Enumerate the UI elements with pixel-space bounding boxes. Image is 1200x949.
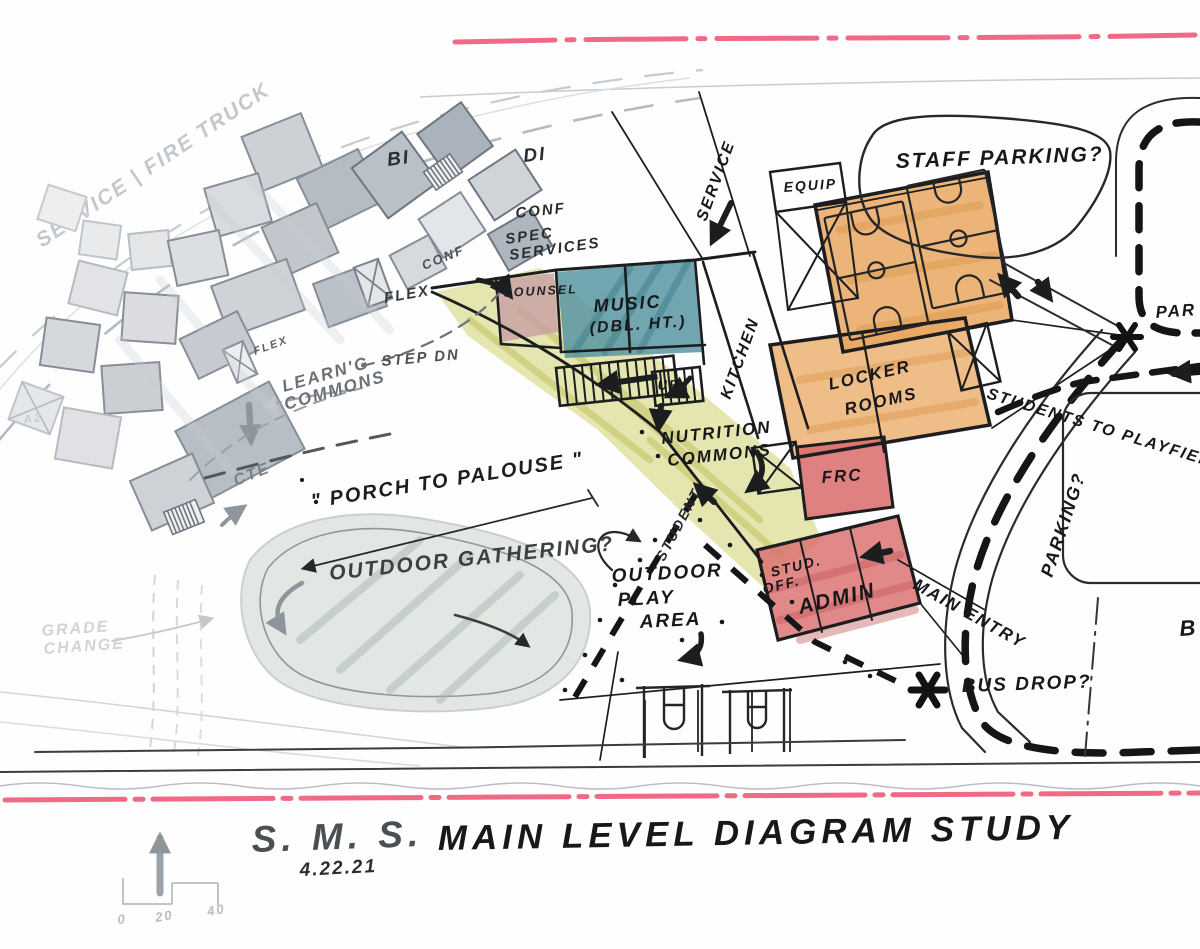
title-main: MAIN LEVEL DIAGRAM STUDY xyxy=(437,808,1074,858)
label-bi: BI xyxy=(386,147,412,171)
label-outdoor-play-2: PLAY xyxy=(617,587,676,611)
title-date: 4.22.21 xyxy=(298,856,377,881)
outdoor-courts xyxy=(636,684,792,758)
title-sms: S. M. S. xyxy=(251,813,424,860)
label-service: SERVICE xyxy=(694,138,739,223)
title-block: S. M. S. MAIN LEVEL DIAGRAM STUDY 4.22.2… xyxy=(117,808,1075,927)
scale-bar: 0 20 40 xyxy=(117,878,227,927)
label-outdoor-play-3: AREA xyxy=(638,609,702,633)
label-flex-b: FLEX xyxy=(252,334,290,358)
label-b-partial: B xyxy=(1179,615,1199,641)
label-up: UP xyxy=(657,376,680,393)
label-equip: EQUIP xyxy=(783,175,838,195)
label-outdoor-play-1: OUTDOOR xyxy=(611,560,723,587)
label-bus-drop: BUS DROP? xyxy=(961,671,1092,697)
scale-40: 40 xyxy=(205,901,227,919)
label-students-to-playfield: STUDENTS TO PLAYFIELD xyxy=(985,386,1200,474)
label-par-partial: PAR xyxy=(1155,300,1197,322)
scale-20: 20 xyxy=(153,907,175,925)
site-diagram-sketch: SERVICE | FIRE TRUCK xyxy=(0,0,1200,949)
label-flex-a: FLEX xyxy=(383,282,432,307)
label-porch: " PORCH TO PALOUSE " xyxy=(309,448,585,513)
label-frc: FRC xyxy=(821,465,863,487)
label-di: DI xyxy=(522,144,547,167)
label-staff-parking: STAFF PARKING? xyxy=(895,143,1104,173)
label-step-dn: STEP DN xyxy=(381,346,461,370)
scale-0: 0 xyxy=(117,911,128,927)
